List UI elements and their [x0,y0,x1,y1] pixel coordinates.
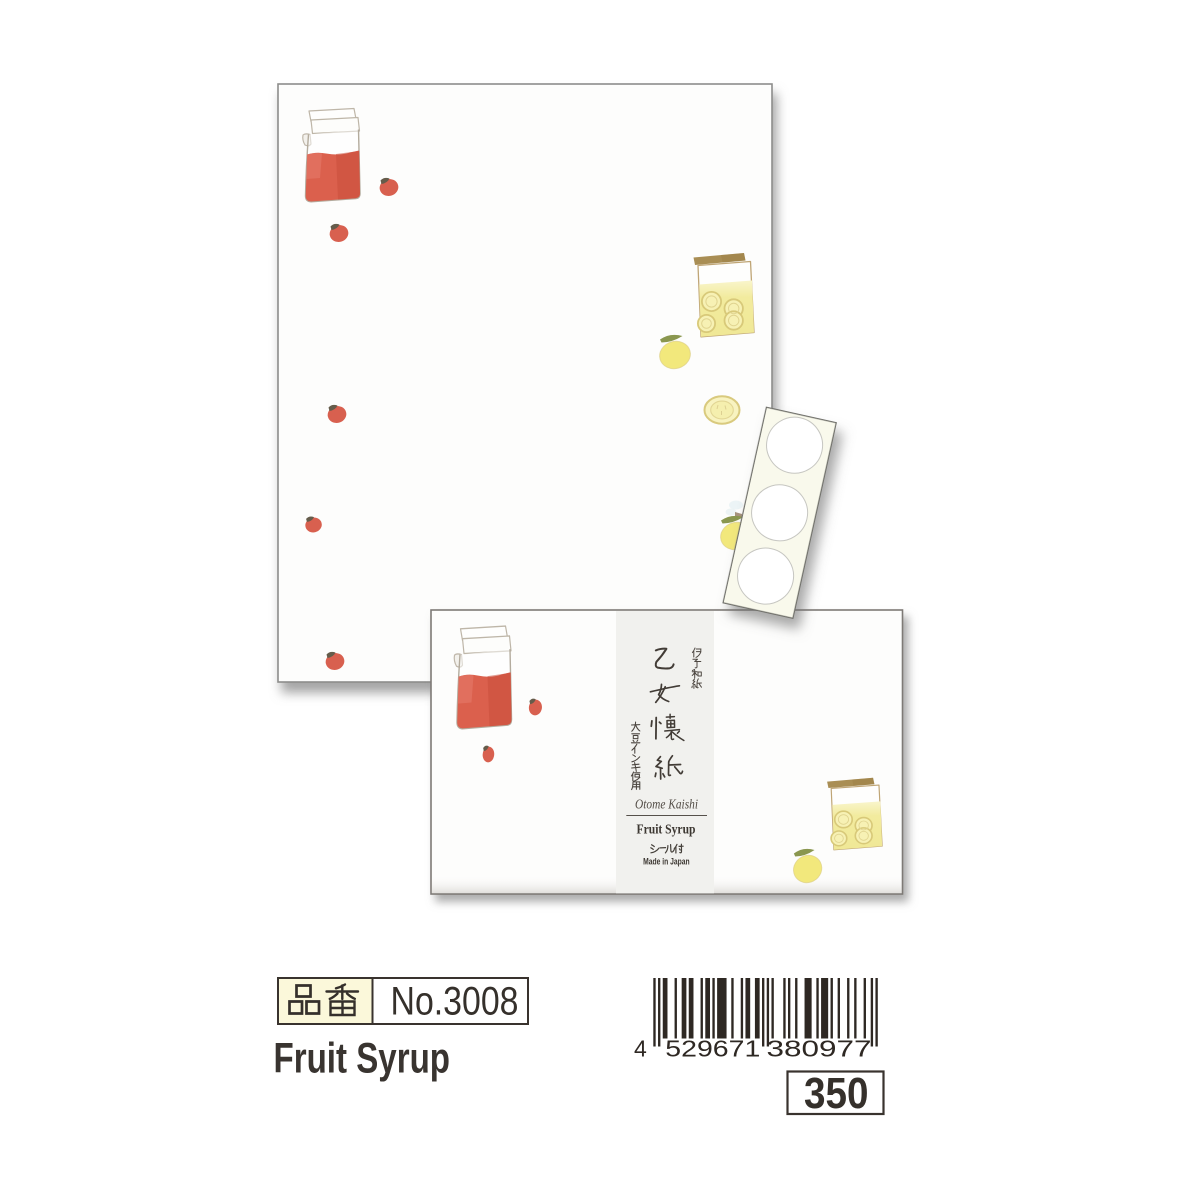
svg-text:Fruit Syrup: Fruit Syrup [274,1035,451,1083]
svg-text:Made in Japan: Made in Japan [643,856,690,867]
svg-text:No.3008: No.3008 [391,980,519,1024]
svg-text:4: 4 [634,1036,647,1062]
svg-text:529671: 529671 [665,1036,760,1062]
svg-text:380977: 380977 [767,1036,872,1062]
svg-text:Otome Kaishi: Otome Kaishi [635,797,698,812]
svg-text:Fruit Syrup: Fruit Syrup [637,823,696,838]
svg-text:350: 350 [804,1069,869,1118]
